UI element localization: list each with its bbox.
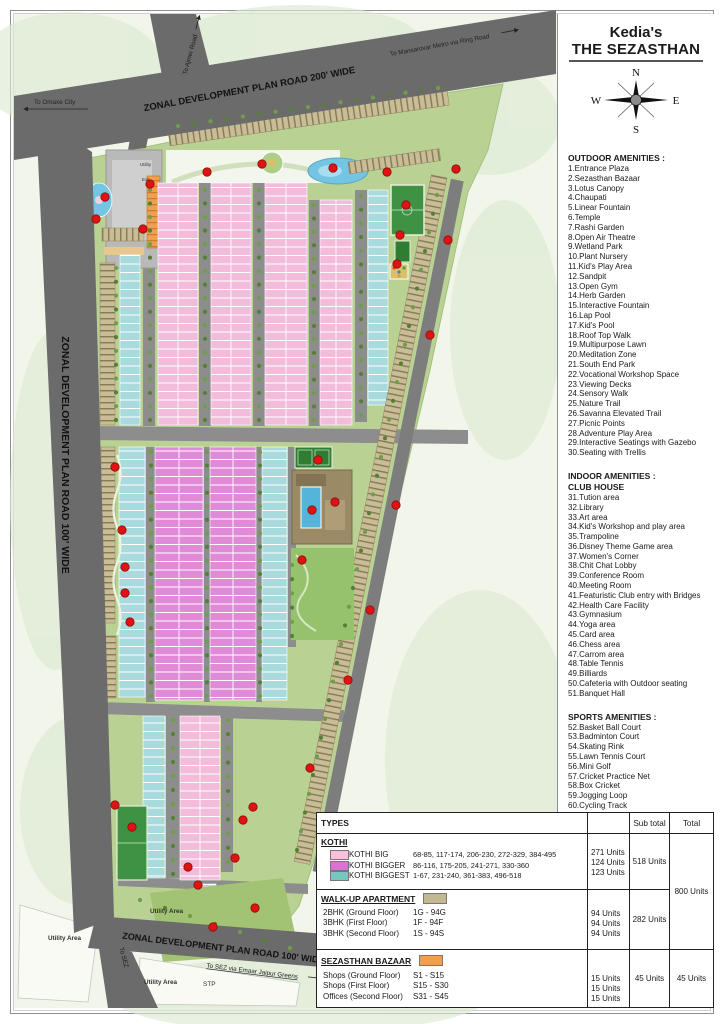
kothi-plot-ranges: 68-85, 117-174, 206-230, 272-329, 384-49…	[413, 850, 556, 861]
amenity-item: 22.Vocational Workshop Space	[568, 370, 714, 380]
units-line: 15 Units	[591, 994, 629, 1004]
walkup-section: WALK-UP APARTMENT 2BHK (Ground Floor)1G …	[317, 889, 587, 949]
bazaar-row: Shops (First Floor)S15 - S30	[323, 981, 584, 991]
amenity-item: 46.Chess area	[568, 640, 714, 650]
amenity-item: 5.Linear Fountain	[568, 203, 714, 213]
row-range: S31 - S45	[413, 992, 449, 1002]
amenity-item: 38.Chit Chat Lobby	[568, 561, 714, 571]
left-road-label: ZONAL DEVELOPMENT PLAN ROAD 100' WIDE	[59, 336, 71, 573]
amenity-item: 39.Conference Room	[568, 571, 714, 581]
bazaar-section: SEZASTHAN BAZAAR Shops (Ground Floor)S1 …	[317, 949, 587, 1007]
bazaar-subtotal: 45 Units	[629, 949, 669, 1007]
units-line: 94 Units	[591, 919, 629, 929]
utility-area-label: Utility Area	[150, 908, 184, 915]
amenity-item: 19.Multipurpose Lawn	[568, 340, 714, 350]
compass-e: E	[673, 95, 680, 107]
row-label: 2BHK (Ground Floor)	[323, 908, 413, 918]
amenity-item: 17.Kid's Pool	[568, 321, 714, 331]
legend-swatch	[330, 861, 349, 871]
amenity-item: 21.South End Park	[568, 360, 714, 370]
stp-label: STP	[203, 981, 216, 988]
row-label: 3BHK (Second Floor)	[323, 929, 413, 939]
kothi-type-label: KOTHI BIGGER	[349, 861, 413, 872]
amenity-item: 24.Sensory Walk	[568, 389, 714, 399]
amenity-item: 16.Lap Pool	[568, 311, 714, 321]
kothi-walkup-total: 800 Units	[669, 833, 713, 949]
amenity-item: 43.Gymnasium	[568, 610, 714, 620]
amenity-item: 33.Art area	[568, 513, 714, 523]
amenity-item: 37.Women's Corner	[568, 552, 714, 562]
row-label: Shops (Ground Floor)	[323, 971, 413, 981]
amenity-item: 40.Meeting Room	[568, 581, 714, 591]
amenity-item: 45.Card area	[568, 630, 714, 640]
amenity-item: 29.Interactive Seatings with Gazebo	[568, 438, 714, 448]
units-line: 123 Units	[591, 868, 629, 878]
amenity-item: 23.Viewing Decks	[568, 380, 714, 390]
units-line: 94 Units	[591, 929, 629, 939]
amenity-item: 58.Box Cricket	[568, 781, 714, 791]
amenity-item: 41.Featuristic Club entry with Bridges	[568, 591, 714, 601]
project-title: Kedia's THE SEZASTHAN	[558, 24, 714, 62]
units-line: 94 Units	[591, 909, 629, 919]
amenity-section: OUTDOOR AMENITIES :1.Entrance Plaza2.Sez…	[568, 153, 714, 458]
amenity-item: 56.Mini Golf	[568, 762, 714, 772]
walkup-units: 94 Units94 Units94 Units	[587, 889, 629, 949]
amenity-item: 51.Banquet Hall	[568, 689, 714, 699]
walkup-row: 3BHK (Second Floor)1S - 94S	[323, 929, 584, 939]
amenity-section: INDOOR AMENITIES :CLUB HOUSE31.Tution ar…	[568, 471, 714, 699]
kothi-type-label: KOTHI BIGGEST	[349, 871, 413, 882]
amenity-heading: INDOOR AMENITIES :	[568, 471, 714, 482]
row-label: 3BHK (First Floor)	[323, 918, 413, 928]
amenity-item: 30.Seating with Trellis	[568, 448, 714, 458]
bazaar-row: Offices (Second Floor)S31 - S45	[323, 992, 584, 1002]
bazaar-title: SEZASTHAN BAZAAR	[321, 956, 411, 966]
amenity-item: 1.Entrance Plaza	[568, 164, 714, 174]
amenity-item: 42.Health Care Facility	[568, 601, 714, 611]
walkup-row: 2BHK (Ground Floor)1G - 94G	[323, 908, 584, 918]
amenity-item: 15.Interactive Fountain	[568, 301, 714, 311]
row-range: S1 - S15	[413, 971, 444, 981]
row-range: S15 - S30	[413, 981, 449, 991]
amenity-item: 44.Yoga area	[568, 620, 714, 630]
amenity-item: 25.Nature Trail	[568, 399, 714, 409]
utility-small-label: Utility	[140, 162, 152, 167]
amenity-item: 59.Jogging Loop	[568, 791, 714, 801]
walkup-subtotal: 282 Units	[629, 889, 669, 949]
club-house	[291, 447, 354, 640]
amenity-heading: OUTDOOR AMENITIES :	[568, 153, 714, 164]
amenity-item: 49.Billiards	[568, 669, 714, 679]
kothi-title: KOTHI	[321, 837, 347, 847]
row-label: Shops (First Floor)	[323, 981, 413, 991]
walkup-swatch	[423, 893, 447, 904]
kothi-legend-row: KOTHI BIGGER86-116, 175-205, 241-271, 33…	[330, 861, 584, 872]
amenity-item: 11.Kid's Play Area	[568, 262, 714, 272]
amenity-item: 34.Kid's Workshop and play area	[568, 522, 714, 532]
amenity-item: 32.Library	[568, 503, 714, 513]
legend-swatch	[330, 850, 349, 860]
kothi-subtotal: 518 Units	[629, 833, 669, 889]
amenity-item: 20.Meditation Zone	[568, 350, 714, 360]
amenity-heading: CLUB HOUSE	[568, 482, 714, 493]
amenity-item: 3.Lotus Canopy	[568, 184, 714, 194]
kothi-section: KOTHI KOTHI BIG68-85, 117-174, 206-230, …	[317, 833, 587, 889]
utility-area-label: Utility Area	[48, 935, 82, 942]
exit-label: Exit	[142, 177, 150, 182]
brand-name: Kedia's	[558, 24, 714, 41]
compass-rose: N S W E	[576, 66, 696, 136]
row-label: Offices (Second Floor)	[323, 992, 413, 1002]
amenity-item: 60.Cycling Track	[568, 801, 714, 811]
subtotal-header: Sub total	[629, 813, 669, 833]
compass-s: S	[633, 124, 639, 136]
kothi-type-label: KOTHI BIG	[349, 850, 413, 861]
amenity-item: 9.Wetland Park	[568, 242, 714, 252]
amenity-item: 18.Roof Top Walk	[568, 331, 714, 341]
row-range: 1S - 94S	[413, 929, 444, 939]
utility-area-label: Utility Area	[144, 979, 178, 986]
compass-n: N	[632, 67, 640, 79]
amenity-item: 35.Trampoline	[568, 532, 714, 542]
amenity-item: 14.Herb Garden	[568, 291, 714, 301]
types-header: TYPES	[317, 813, 587, 833]
amenity-item: 27.Picnic Points	[568, 419, 714, 429]
amenity-item: 57.Cricket Practice Net	[568, 772, 714, 782]
bazaar-row: Shops (Ground Floor)S1 - S15	[323, 971, 584, 981]
amenity-item: 47.Carrom area	[568, 650, 714, 660]
units-line: 271 Units	[591, 848, 629, 858]
amenity-item: 53.Badminton Court	[568, 732, 714, 742]
amenity-item: 13.Open Gym	[568, 282, 714, 292]
walkup-title: WALK-UP APARTMENT	[321, 894, 415, 904]
units-line: 124 Units	[591, 858, 629, 868]
amenity-item: 26.Savanna Elevated Trail	[568, 409, 714, 419]
total-header: Total	[669, 813, 713, 833]
compass-w: W	[591, 95, 602, 107]
row-range: 1F - 94F	[413, 918, 443, 928]
amenity-item: 4.Chaupati	[568, 193, 714, 203]
amenity-item: 2.Sezasthan Bazaar	[568, 174, 714, 184]
amenity-item: 12.Sandpit	[568, 272, 714, 282]
project-name: THE SEZASTHAN	[569, 41, 703, 62]
bazaar-swatch	[419, 955, 443, 966]
kothi-rows: KOTHI BIG68-85, 117-174, 206-230, 272-32…	[321, 850, 584, 882]
units-line: 15 Units	[591, 974, 629, 984]
amenity-item: 10.Plant Nursery	[568, 252, 714, 262]
units-line: 15 Units	[591, 984, 629, 994]
walkup-row: 3BHK (First Floor)1F - 94F	[323, 918, 584, 928]
row-range: 1G - 94G	[413, 908, 446, 918]
amenity-item: 8.Open Air Theatre	[568, 233, 714, 243]
kothi-legend-row: KOTHI BIGGEST1-67, 231-240, 361-383, 496…	[330, 871, 584, 882]
amenity-section: SPORTS AMENITIES :52.Basket Ball Court53…	[568, 712, 714, 811]
bazaar-units: 15 Units15 Units15 Units	[587, 949, 629, 1007]
omaxe-label: To Omaxe City	[34, 99, 76, 106]
amenities-panel: OUTDOOR AMENITIES :1.Entrance Plaza2.Sez…	[558, 153, 714, 811]
units-header-empty	[587, 813, 629, 833]
bazaar-total: 45 Units	[669, 949, 713, 1007]
amenity-item: 36.Disney Theme Game area	[568, 542, 714, 552]
amenity-item: 31.Tution area	[568, 493, 714, 503]
amenity-item: 52.Basket Ball Court	[568, 723, 714, 733]
kothi-plot-ranges: 86-116, 175-205, 241-271, 330-360	[413, 861, 529, 872]
kothi-plot-ranges: 1-67, 231-240, 361-383, 496-518	[413, 871, 521, 882]
amenity-item: 6.Temple	[568, 213, 714, 223]
amenity-item: 48.Table Tennis	[568, 659, 714, 669]
types-table: TYPES Sub total Total KOTHI KOTHI BIG68-…	[316, 812, 714, 1008]
walkup-rows: 2BHK (Ground Floor)1G - 94G3BHK (First F…	[321, 908, 584, 939]
amenity-item: 7.Rashi Garden	[568, 223, 714, 233]
badminton-court	[395, 241, 410, 262]
amenity-item: 55.Lawn Tennis Court	[568, 752, 714, 762]
kothi-legend-row: KOTHI BIG68-85, 117-174, 206-230, 272-32…	[330, 850, 584, 861]
amenity-heading: SPORTS AMENITIES :	[568, 712, 714, 723]
bazaar-rows: Shops (Ground Floor)S1 - S15Shops (First…	[321, 971, 584, 1002]
amenity-item: 54.Skating Rink	[568, 742, 714, 752]
legend-swatch	[330, 871, 349, 881]
amenity-item: 28.Adventure Play Area	[568, 429, 714, 439]
kothi-units: 271 Units124 Units123 Units	[587, 833, 629, 889]
amenity-item: 50.Cafeteria with Outdoor seating	[568, 679, 714, 689]
